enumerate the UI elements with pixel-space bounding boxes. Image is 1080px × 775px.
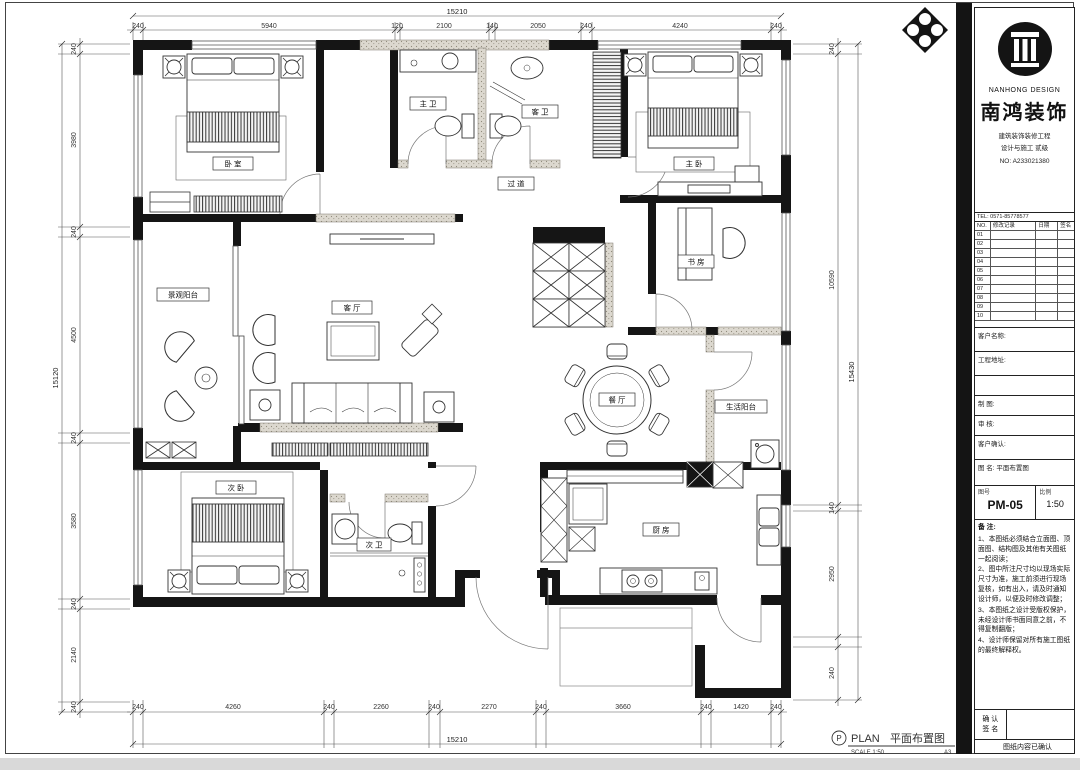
bedroom3-wardrobe — [146, 442, 428, 458]
svg-text:15430: 15430 — [847, 362, 856, 383]
svg-text:2100: 2100 — [436, 23, 452, 30]
revision-table: TEL: 0571-85778577 NO. 修改记录 日期 签名 01 02 … — [975, 213, 1074, 328]
note-item: 1、本图纸必须结合立面图、顶面图、结构图及其他有关图纸一起阅读； — [978, 535, 1071, 565]
floor-plan-svg: 15210 240 5940 120 2100 140 2050 240 424… — [0, 0, 956, 770]
svg-text:3660: 3660 — [615, 704, 631, 711]
svg-text:140: 140 — [829, 502, 836, 514]
svg-text:240: 240 — [700, 704, 712, 711]
bottom-strip — [0, 758, 1080, 770]
svg-text:客 厅: 客 厅 — [343, 303, 361, 313]
room-label-master-bath: 主 卫 — [410, 97, 446, 110]
note-item: 4、设计师保留对所有施工图纸的最终解释权。 — [978, 636, 1071, 656]
drawing-number-row: 图号 PM-05 比例 1:50 — [975, 486, 1074, 520]
svg-text:2270: 2270 — [481, 704, 497, 711]
room-label-second-bath: 次 卫 — [357, 538, 391, 551]
room-label-dining: 餐 厅 — [599, 393, 635, 406]
info-client: 客户名称: — [975, 328, 1074, 352]
balcony-table — [195, 367, 217, 389]
svg-text:240: 240 — [71, 432, 78, 444]
svg-text:4500: 4500 — [71, 327, 78, 343]
revision-row: 03 — [975, 249, 1074, 258]
dimension-top-labels: 15210 240 5940 120 2100 140 2050 240 424… — [132, 7, 782, 30]
cert-line: 建筑装饰装修工程 — [975, 131, 1074, 143]
svg-text:2260: 2260 — [373, 704, 389, 711]
notes-section: 备 注: 1、本图纸必须结合立面图、顶面图、结构图及其他有关图纸一起阅读； 2、… — [975, 520, 1074, 710]
room-label-service-balcony: 生活阳台 — [715, 400, 767, 413]
nanhong-logo-icon — [996, 20, 1054, 78]
info-address: 工程地址: — [975, 352, 1074, 376]
notes-title: 备 注: — [978, 523, 1071, 533]
room-label-view-balcony: 景观阳台 — [157, 288, 209, 301]
shoe-cabinet — [593, 52, 621, 158]
svg-text:次 卫: 次 卫 — [365, 540, 383, 550]
svg-text:15120: 15120 — [51, 368, 60, 389]
floor-plan: 15210 240 5940 120 2100 140 2050 240 424… — [0, 0, 956, 770]
svg-text:3580: 3580 — [71, 513, 78, 529]
porch-outline — [560, 608, 692, 686]
drawing-number-label: 图号 — [975, 486, 1035, 496]
svg-text:4260: 4260 — [225, 704, 241, 711]
svg-text:240: 240 — [829, 667, 836, 679]
drawing-number-cell: 图号 PM-05 — [975, 486, 1036, 519]
svg-text:4240: 4240 — [672, 23, 688, 30]
revision-header: NO. 修改记录 日期 签名 — [975, 222, 1074, 231]
dimension-left — [58, 38, 130, 718]
logo-section: NANHONG DESIGN 南鸿装饰 建筑装饰装修工程 设计与施工 贰级 NO… — [975, 8, 1074, 213]
room-label-hallway: 过 道 — [498, 177, 534, 190]
svg-text:2950: 2950 — [829, 566, 836, 582]
study-desk — [678, 208, 712, 280]
svg-text:240: 240 — [323, 704, 335, 711]
master-bed — [624, 52, 762, 196]
scale-label: 比例 — [1036, 486, 1074, 496]
room-label-bedroom3: 次 卧 — [216, 481, 256, 494]
svg-text:2140: 2140 — [71, 647, 78, 663]
revision-row: 09 — [975, 303, 1074, 312]
svg-text:书 房: 书 房 — [687, 257, 704, 267]
chaise — [400, 318, 440, 358]
scale-value: 1:50 — [1036, 499, 1074, 509]
svg-text:240: 240 — [829, 43, 836, 55]
svg-text:餐 厅: 餐 厅 — [608, 396, 626, 405]
svg-text:2050: 2050 — [530, 23, 546, 30]
revision-row: 04 — [975, 258, 1074, 267]
svg-text:240: 240 — [770, 23, 782, 30]
confirm-label: 确 认 签 名 — [975, 710, 1007, 739]
svg-text:1420: 1420 — [733, 704, 749, 711]
svg-text:240: 240 — [580, 23, 592, 30]
svg-text:厨 房: 厨 房 — [652, 525, 669, 535]
room-label-guest-bath: 客 卫 — [522, 105, 558, 118]
room-label-master-bedroom: 主 卧 — [674, 157, 714, 170]
revision-row: 06 — [975, 276, 1074, 285]
note-item: 3、本图纸之设计受版权保护，未经设计师书面同意之前，不得复制翻版； — [978, 606, 1071, 636]
caption-marker: P — [836, 734, 841, 743]
svg-text:15210: 15210 — [447, 7, 468, 16]
svg-text:240: 240 — [770, 704, 782, 711]
contact-line: TEL: 0571-85778577 — [975, 213, 1074, 222]
confirm-section: 确 认 签 名 — [975, 710, 1074, 740]
svg-text:240: 240 — [535, 704, 547, 711]
revision-row: 08 — [975, 294, 1074, 303]
svg-text:120: 120 — [391, 23, 403, 30]
svg-text:次 卧: 次 卧 — [227, 483, 245, 493]
svg-text:140: 140 — [486, 23, 498, 30]
svg-text:15210: 15210 — [447, 735, 468, 744]
svg-text:240: 240 — [71, 701, 78, 713]
svg-text:240: 240 — [71, 598, 78, 610]
svg-text:客 卫: 客 卫 — [531, 107, 549, 117]
svg-text:生活阳台: 生活阳台 — [726, 402, 756, 412]
sliding-door — [233, 246, 244, 424]
logo-name-en: NANHONG DESIGN — [975, 87, 1074, 94]
confirm-signature-area — [1007, 710, 1074, 739]
revision-row: 07 — [975, 285, 1074, 294]
scale-cell: 比例 1:50 — [1036, 486, 1074, 519]
revision-row: 10 — [975, 312, 1074, 321]
svg-text:主 卫: 主 卫 — [419, 99, 437, 109]
svg-text:240: 240 — [132, 704, 144, 711]
info-drawing-name: 图 名: 平面布置图 — [975, 460, 1074, 486]
info-confirm: 客户确认: — [975, 436, 1074, 460]
washing-machine — [751, 440, 779, 468]
note-item: 2、图中所注尺寸均以现场实际尺寸为准，施工前须进行现场复核，如有出入，请及时通知… — [978, 565, 1071, 604]
svg-text:3980: 3980 — [71, 132, 78, 148]
revision-row: 01 — [975, 231, 1074, 240]
cert-line: 设计与施工 贰级 — [975, 143, 1074, 155]
cert-line: NO: A233021380 — [975, 156, 1074, 168]
svg-text:景观阳台: 景观阳台 — [168, 290, 198, 300]
svg-text:240: 240 — [71, 43, 78, 55]
info-checker: 审 核: — [975, 416, 1074, 436]
room-label-living: 客 厅 — [332, 301, 372, 314]
master-bath-fixtures — [400, 50, 476, 138]
svg-text:卧 室: 卧 室 — [224, 159, 242, 169]
room-label-bedroom2: 卧 室 — [213, 157, 253, 170]
caption-scale: SCALE 1:50 — [851, 750, 885, 756]
separator-bar — [956, 3, 972, 754]
svg-text:240: 240 — [71, 226, 78, 238]
drawing-number: PM-05 — [975, 498, 1035, 512]
caption-en: PLAN — [851, 733, 880, 745]
guest-bath-fixtures — [490, 57, 543, 138]
room-label-study: 书 房 — [678, 255, 714, 268]
dimension-bottom-labels: 240 4260 240 2260 240 2270 240 3660 240 … — [132, 704, 782, 744]
cert-lines: 建筑装饰装修工程 设计与施工 贰级 NO: A233021380 — [975, 131, 1074, 168]
caption-cn: 平面布置图 — [890, 732, 945, 745]
logo-name-cn: 南鸿装饰 — [975, 96, 1074, 125]
svg-text:10590: 10590 — [829, 270, 836, 290]
info-drafter: 制 图: — [975, 396, 1074, 416]
svg-text:主 卧: 主 卧 — [685, 159, 703, 169]
second-bath-fixtures — [330, 514, 428, 592]
svg-text:过 道: 过 道 — [507, 179, 525, 189]
room-label-kitchen: 厨 房 — [643, 523, 679, 536]
revision-row: 02 — [975, 240, 1074, 249]
confirm-footer: 图纸内容已确认 — [975, 740, 1074, 753]
svg-text:240: 240 — [428, 704, 440, 711]
revision-row: 05 — [975, 267, 1074, 276]
dimension-top — [127, 13, 787, 40]
svg-text:240: 240 — [132, 23, 144, 30]
compass-icon — [902, 7, 948, 53]
caption-sheet: A3 — [944, 750, 952, 756]
title-block: NANHONG DESIGN 南鸿装饰 建筑装饰装修工程 设计与施工 贰级 NO… — [974, 7, 1075, 754]
dresser — [150, 192, 282, 212]
plan-caption: P PLAN 平面布置图 SCALE 1:50 A3 — [832, 731, 955, 756]
svg-text:5940: 5940 — [261, 23, 277, 30]
info-designer — [975, 376, 1074, 396]
dimension-left-labels: 240 3980 240 4500 240 3580 240 2140 240 … — [51, 43, 78, 713]
closet-cabinets — [533, 243, 605, 327]
dimension-right-labels: 240 10590 140 2950 240 15430 — [829, 43, 856, 679]
